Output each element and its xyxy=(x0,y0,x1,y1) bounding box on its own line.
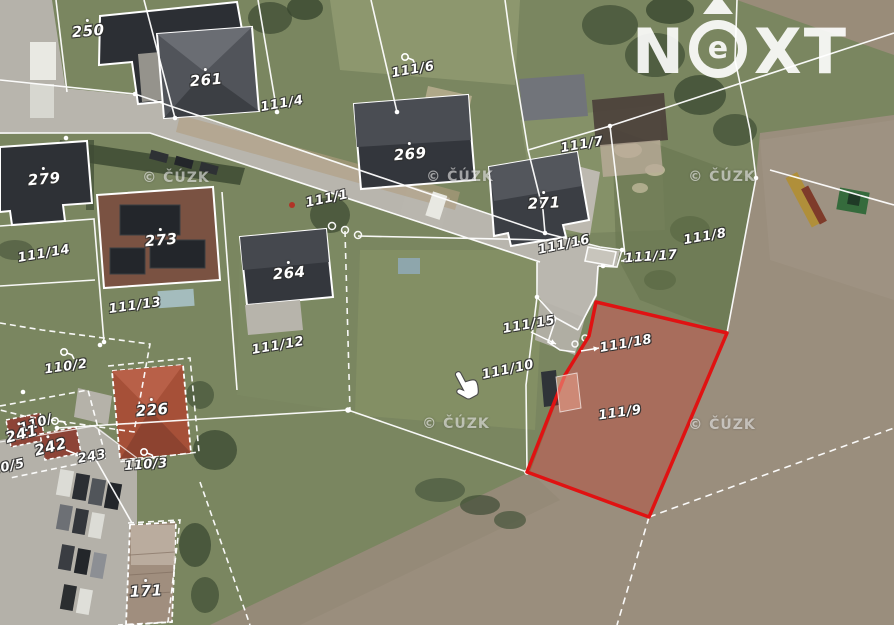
house-261-roof xyxy=(157,27,259,118)
aerial-map[interactable]: 250261111/4111/6269111/7279111/127127311… xyxy=(0,0,894,625)
building-171-roof xyxy=(126,522,176,625)
map-background xyxy=(0,0,894,625)
house-226-roof xyxy=(112,365,191,459)
house-273-roof xyxy=(97,187,220,288)
